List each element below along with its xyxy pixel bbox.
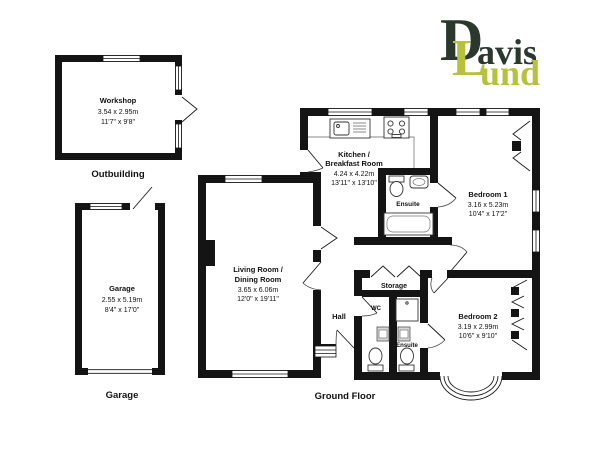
wall-segment — [198, 175, 206, 378]
garage-section-label: Garage — [106, 390, 139, 401]
window — [533, 190, 540, 212]
room-label: Breakfast Room — [325, 159, 383, 168]
room-label: Living Room / — [233, 265, 283, 274]
living-room: Living Room / Dining Room 3.65 x 6.06m 1… — [233, 265, 283, 303]
wall-segment — [420, 297, 428, 323]
window — [176, 124, 182, 148]
wall-segment — [300, 108, 308, 150]
hall-label: Hall — [332, 312, 346, 321]
room-label: Garage — [109, 284, 135, 293]
wall-segment — [354, 270, 362, 296]
room-metric: 4.24 x 4.22m — [334, 171, 375, 178]
window — [176, 66, 182, 90]
room-imperial: 10'6" x 9'10" — [459, 333, 498, 340]
window — [533, 230, 540, 252]
ensuite2-fixtures — [396, 299, 418, 371]
window — [90, 204, 122, 210]
bedroom2-wardrobe — [511, 280, 527, 350]
wall-segment — [430, 108, 438, 183]
logo-lund-text: und — [480, 55, 540, 91]
wall-segment — [454, 270, 540, 278]
basin-icon — [410, 176, 428, 188]
window — [103, 56, 140, 62]
window — [404, 109, 428, 116]
floorplan-page: Workshop 3.54 x 2.95m 11'7" x 9'8" Outbu… — [0, 0, 600, 460]
room-metric: 2.55 x 5.19m — [102, 297, 143, 304]
wall-segment — [420, 277, 428, 297]
window — [486, 109, 509, 116]
room-metric: 3.65 x 6.06m — [238, 287, 279, 294]
door-opening — [130, 187, 155, 210]
room-metric: 3.54 x 2.95m — [98, 109, 139, 116]
room-label: Bedroom 1 — [468, 190, 507, 199]
room-label: Workshop — [100, 96, 137, 105]
wall-segment — [55, 153, 182, 160]
wall-segment — [420, 348, 428, 372]
toilet-icon — [368, 348, 383, 371]
basin-icon — [377, 327, 389, 341]
kitchen-back-door — [308, 150, 323, 172]
shower-icon — [396, 299, 418, 321]
wc-fixtures — [368, 327, 389, 371]
wall-segment — [420, 270, 432, 278]
wall-segment — [75, 203, 82, 375]
hob-icon — [384, 117, 409, 138]
room-imperial: 13'11" x 13'10" — [331, 180, 377, 187]
wc-label: WC — [371, 306, 382, 312]
room-imperial: 10'4" x 17'2" — [469, 211, 508, 218]
ensuite2-label: Ensuite — [396, 343, 418, 349]
wall-segment — [362, 290, 428, 297]
wall-segment — [313, 250, 321, 262]
storage-label: Storage — [381, 283, 407, 290]
wall-segment — [300, 172, 321, 183]
outbuilding-section-label: Outbuilding — [91, 169, 144, 180]
room-metric: 3.19 x 2.99m — [458, 324, 499, 331]
ground-floor-label: Ground Floor — [315, 391, 376, 402]
front-door-step — [315, 346, 336, 357]
toilet-icon — [399, 348, 414, 371]
living-room-door-lower — [303, 262, 321, 290]
davis-lund-logo: D L avis und — [438, 12, 593, 87]
ensuite1-door — [438, 183, 456, 207]
kitchen-room: Kitchen / Breakfast Room 4.24 x 4.22m 13… — [325, 150, 383, 187]
window — [328, 109, 372, 116]
room-label: Kitchen / — [338, 150, 371, 159]
bay-window — [440, 376, 502, 400]
wall-segment — [313, 290, 321, 370]
garage-door-opening — [88, 368, 152, 375]
room-imperial: 12'0" x 19'11" — [237, 296, 279, 303]
toilet-icon — [389, 176, 404, 197]
wall-segment — [502, 372, 540, 380]
wall-segment — [378, 168, 438, 175]
chimney-breast — [206, 240, 215, 266]
room-imperial: 11'7" x 9'8" — [101, 119, 135, 126]
room-label: Bedroom 2 — [458, 312, 497, 321]
garage-room: Garage 2.55 x 5.19m 8'4" x 17'0" — [75, 187, 165, 375]
window — [225, 176, 262, 183]
front-door — [336, 330, 354, 348]
bedroom1-door — [450, 245, 467, 272]
basin-icon — [398, 327, 410, 341]
room-metric: 3.16 x 5.23m — [468, 202, 509, 209]
bedroom1-room: Bedroom 1 3.16 x 5.23m 10'4" x 17'2" — [468, 190, 509, 218]
bath-icon — [384, 213, 433, 235]
living-room-door-upper — [321, 227, 337, 249]
storage-bifold-doors — [371, 266, 421, 277]
wall-segment — [354, 316, 362, 372]
bedroom1-chimney-breast — [512, 121, 530, 171]
wall-segment — [158, 203, 165, 375]
window — [456, 109, 480, 116]
bedroom2-door — [431, 278, 448, 293]
ensuite2-door — [428, 324, 445, 348]
wall-segment — [313, 183, 321, 226]
window — [232, 371, 288, 378]
room-label: Dining Room — [235, 275, 282, 284]
room-imperial: 8'4" x 17'0" — [105, 307, 140, 314]
sink-icon — [330, 119, 370, 138]
wall-segment — [55, 55, 62, 160]
ensuite1-label: Ensuite — [396, 201, 420, 208]
workshop-room: Workshop 3.54 x 2.95m 11'7" x 9'8" — [55, 55, 197, 160]
bedroom2-room: Bedroom 2 3.19 x 2.99m 10'6" x 9'10" — [458, 312, 499, 340]
door-opening — [175, 95, 197, 122]
wall-segment — [354, 372, 428, 380]
